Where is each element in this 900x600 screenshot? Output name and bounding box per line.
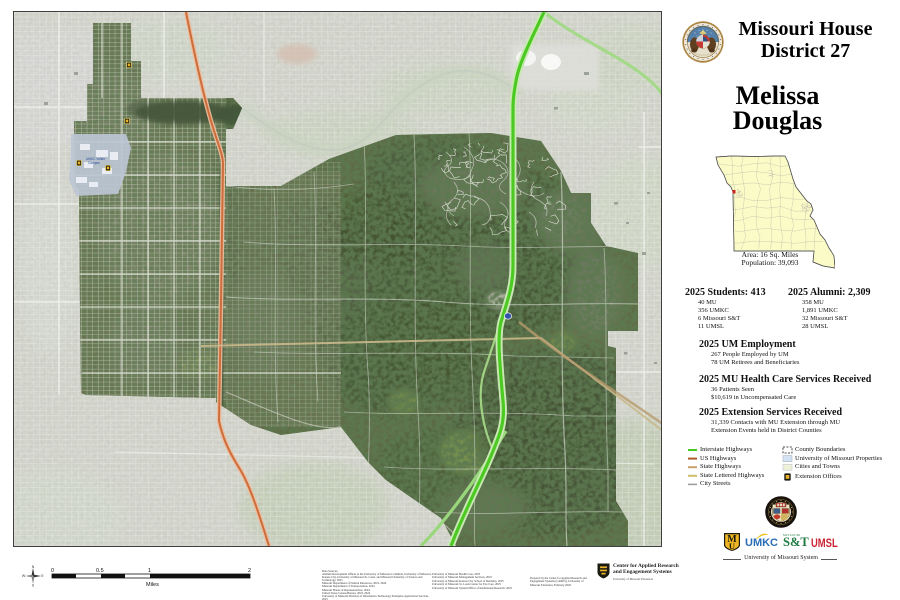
svg-text:1: 1 xyxy=(148,568,151,574)
svg-text:Miles: Miles xyxy=(146,582,159,588)
svg-text:2: 2 xyxy=(248,568,251,574)
svg-text:0.5: 0.5 xyxy=(96,568,104,574)
svg-text:E: E xyxy=(41,574,44,578)
svg-text:0: 0 xyxy=(51,568,54,574)
svg-text:S: S xyxy=(32,584,35,588)
svg-text:U: U xyxy=(729,541,735,551)
svg-text:Campus: Campus xyxy=(88,161,100,165)
svg-text:N: N xyxy=(32,565,35,569)
